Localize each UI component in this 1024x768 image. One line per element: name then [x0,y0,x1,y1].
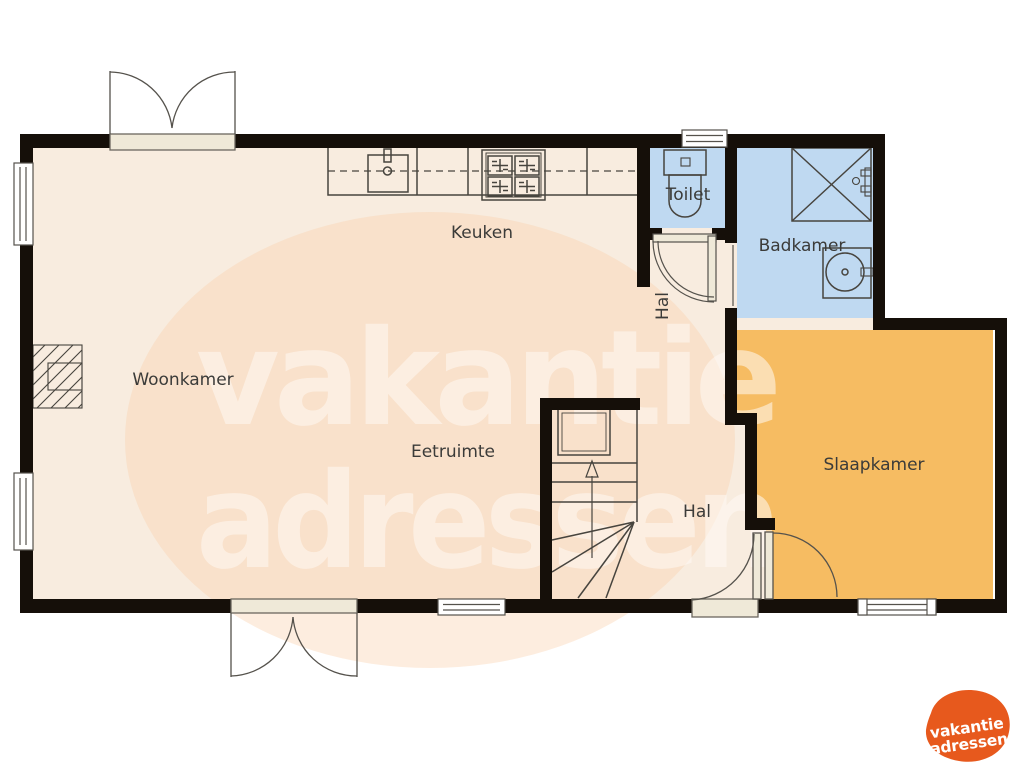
floorplan-svg: vakantie adressen [0,0,1024,768]
wall-slaapkamer-left-upper [725,330,737,425]
wall-badkamer-left-lower [725,308,737,330]
wall-slaapkamer-right [995,318,1007,613]
window-left-lower [14,473,33,550]
wall-right-upper [873,134,885,330]
wall-toilet-left [637,134,650,287]
watermark-line1: vakantie [196,302,776,456]
floorplan-page: vakantie adressen [0,0,1024,768]
wall-badkamer-left-upper [725,134,737,243]
label-hal-boven: Hal [653,292,673,320]
label-woonkamer: Woonkamer [132,370,233,390]
label-keuken: Keuken [451,223,513,243]
front-door-leaf [753,533,761,599]
window-bottom-eetruimte [438,599,505,615]
label-toilet: Toilet [665,185,711,205]
double-door-bottom-sill [231,599,357,613]
window-bottom-slaapkamer [858,599,936,615]
door-swing-arc [110,72,172,128]
label-eetruimte: Eetruimte [411,442,495,462]
vakantieadressen-logo: vakantie adressen [926,690,1010,762]
window-left-upper [14,163,33,245]
toilet-door-frame [653,234,716,242]
front-door-threshold [692,599,758,617]
watermark-line2: adressen [196,445,776,599]
wall-stairs-top [540,398,640,410]
wall-slaapkamer-left-mid [745,425,757,530]
slaapkamer-door-leaf [765,532,773,599]
floor-badkamer [737,148,873,318]
label-hal-beneden: Hal [683,502,711,522]
label-slaapkamer: Slaapkamer [823,455,924,475]
door-swing-arc [172,72,235,128]
wall-slaapkamer-step-2 [745,518,775,530]
toilet-door-leaf [708,236,716,301]
wall-slaapkamer-step-1 [725,413,757,425]
wall-stairs-left [540,398,552,613]
double-door-top-sill [110,134,235,150]
window-top-toilet [682,130,727,147]
double-door-top [110,71,235,150]
wall-badkamer-bottom [873,318,1007,330]
label-badkamer: Badkamer [759,236,846,256]
